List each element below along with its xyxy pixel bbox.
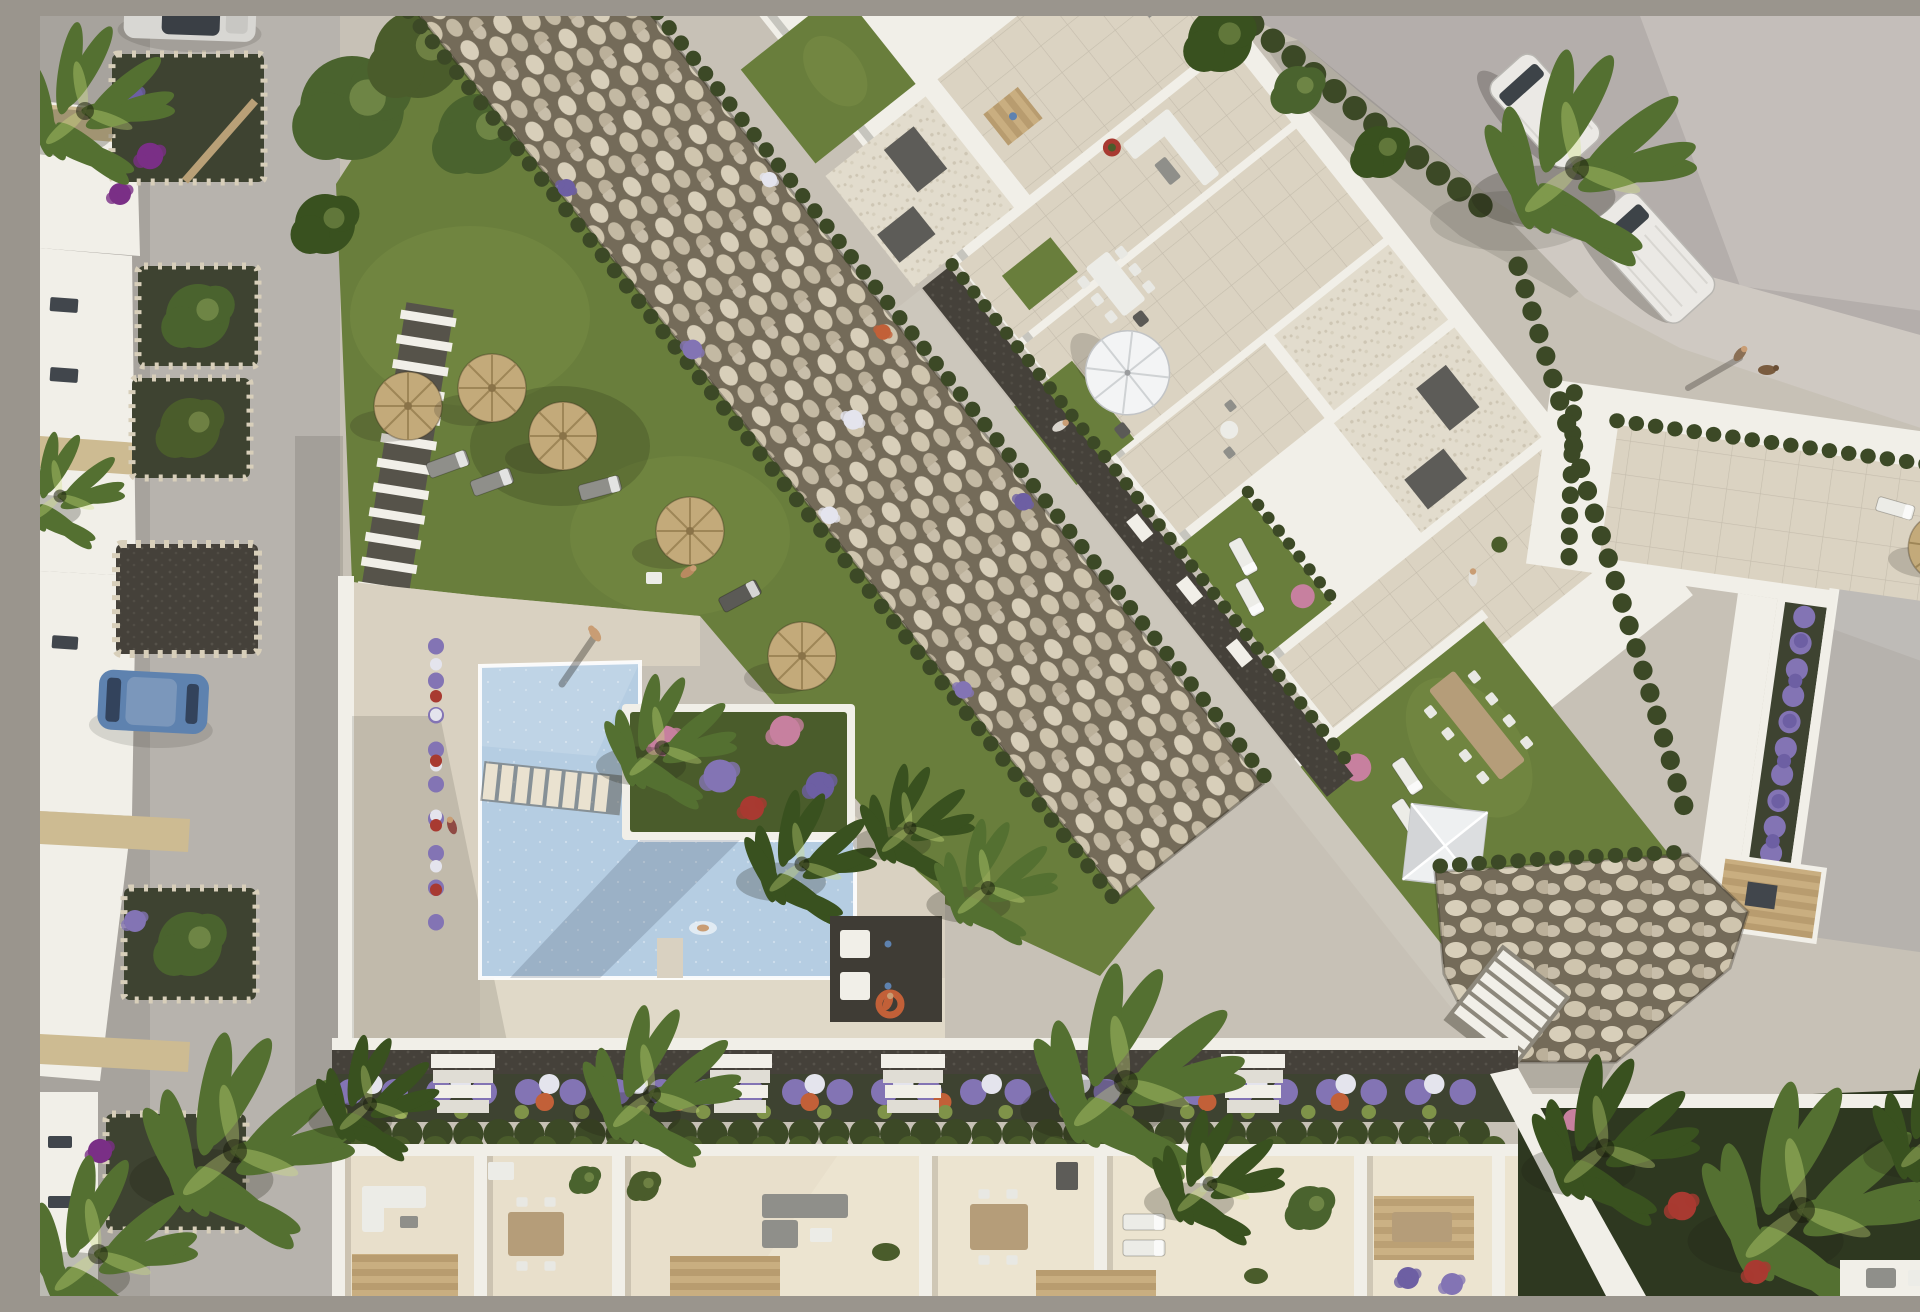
person-standing — [1469, 568, 1478, 586]
blue-car — [88, 669, 216, 751]
aerial-render: Aerial 3D render of a Mediterranean resi… — [40, 16, 1920, 1296]
planter-bush-2 — [132, 378, 250, 478]
straw-parasol — [656, 497, 724, 565]
planter-bush-1 — [138, 266, 258, 366]
planter-gravel — [116, 544, 258, 654]
terrace-row — [332, 1144, 1518, 1296]
straw-parasol — [374, 372, 442, 440]
corner-terrace — [1840, 1260, 1920, 1296]
straw-parasol — [529, 402, 597, 470]
straw-parasol — [458, 354, 526, 422]
pool-platform — [657, 938, 683, 978]
planter-bush-3 — [121, 888, 256, 1000]
dog — [1758, 365, 1776, 375]
straw-parasol — [768, 622, 836, 690]
swimmer — [689, 921, 717, 935]
aerial-render-figure: Aerial 3D render of a Mediterranean resi… — [40, 16, 1920, 1296]
